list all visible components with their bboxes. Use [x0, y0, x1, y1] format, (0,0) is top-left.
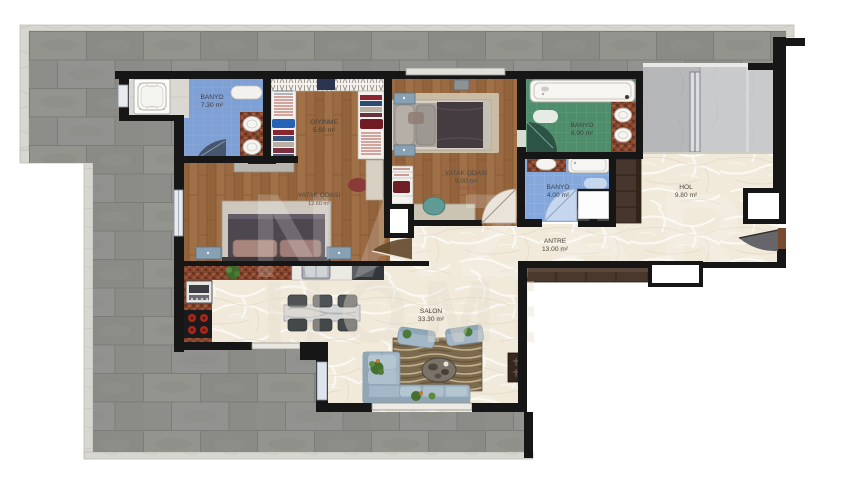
svg-text:BANYO: BANYO: [200, 94, 223, 101]
svg-text:33.30 m²: 33.30 m²: [418, 316, 445, 323]
svg-text:SALON: SALON: [420, 308, 443, 315]
svg-text:13.00 m²: 13.00 m²: [542, 246, 569, 253]
svg-text:BANYO: BANYO: [546, 184, 569, 191]
svg-text:12.60 m²: 12.60 m²: [308, 201, 330, 207]
svg-text:9.00 m²: 9.00 m²: [455, 178, 478, 185]
svg-text:7.30 m²: 7.30 m²: [201, 102, 224, 109]
svg-text:YATAK ODASI: YATAK ODASI: [445, 170, 488, 177]
svg-text:9.80 m²: 9.80 m²: [675, 192, 698, 199]
svg-text:3.30x3.90: 3.30x3.90: [454, 186, 478, 192]
svg-text:YATAK ODASI: YATAK ODASI: [298, 192, 341, 199]
svg-text:5.60 m²: 5.60 m²: [313, 127, 336, 134]
svg-text:HOL: HOL: [679, 184, 693, 191]
svg-text:BANYO: BANYO: [570, 122, 593, 129]
svg-text:4.00 m²: 4.00 m²: [547, 192, 570, 199]
svg-text:ANTRE: ANTRE: [544, 238, 567, 245]
svg-text:6.90 m²: 6.90 m²: [571, 130, 594, 137]
svg-text:GIYINME: GIYINME: [310, 119, 338, 126]
